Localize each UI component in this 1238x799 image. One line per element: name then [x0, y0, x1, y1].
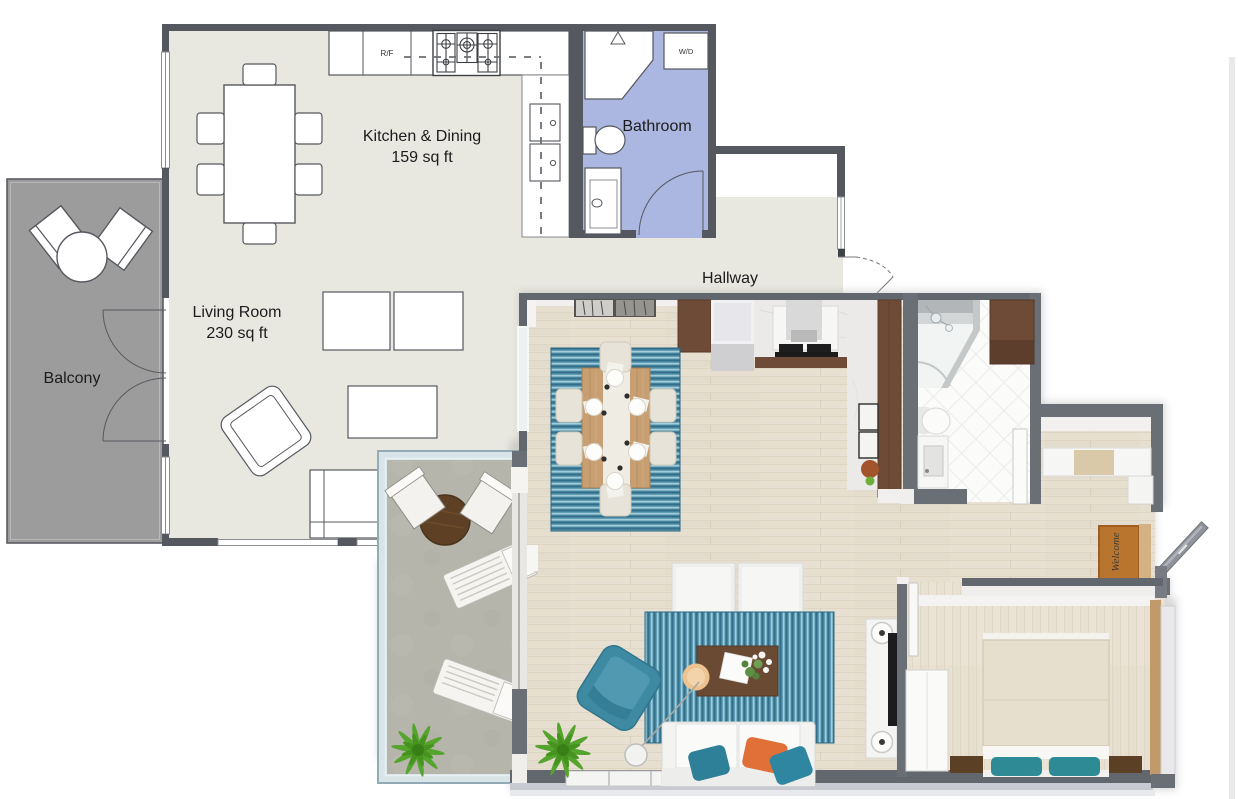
svg-text:Kitchen & Dining: Kitchen & Dining	[363, 128, 481, 145]
svg-text:230 sq ft: 230 sq ft	[206, 325, 268, 342]
svg-text:Living Room: Living Room	[193, 304, 282, 321]
svg-text:R/F: R/F	[381, 49, 394, 58]
svg-text:Balcony: Balcony	[44, 370, 101, 387]
svg-text:Bathroom: Bathroom	[622, 118, 691, 135]
svg-text:W/D: W/D	[679, 47, 694, 56]
svg-text:159 sq ft: 159 sq ft	[391, 149, 453, 166]
svg-text:Welcome: Welcome	[1110, 532, 1122, 571]
svg-text:Hallway: Hallway	[702, 270, 758, 287]
